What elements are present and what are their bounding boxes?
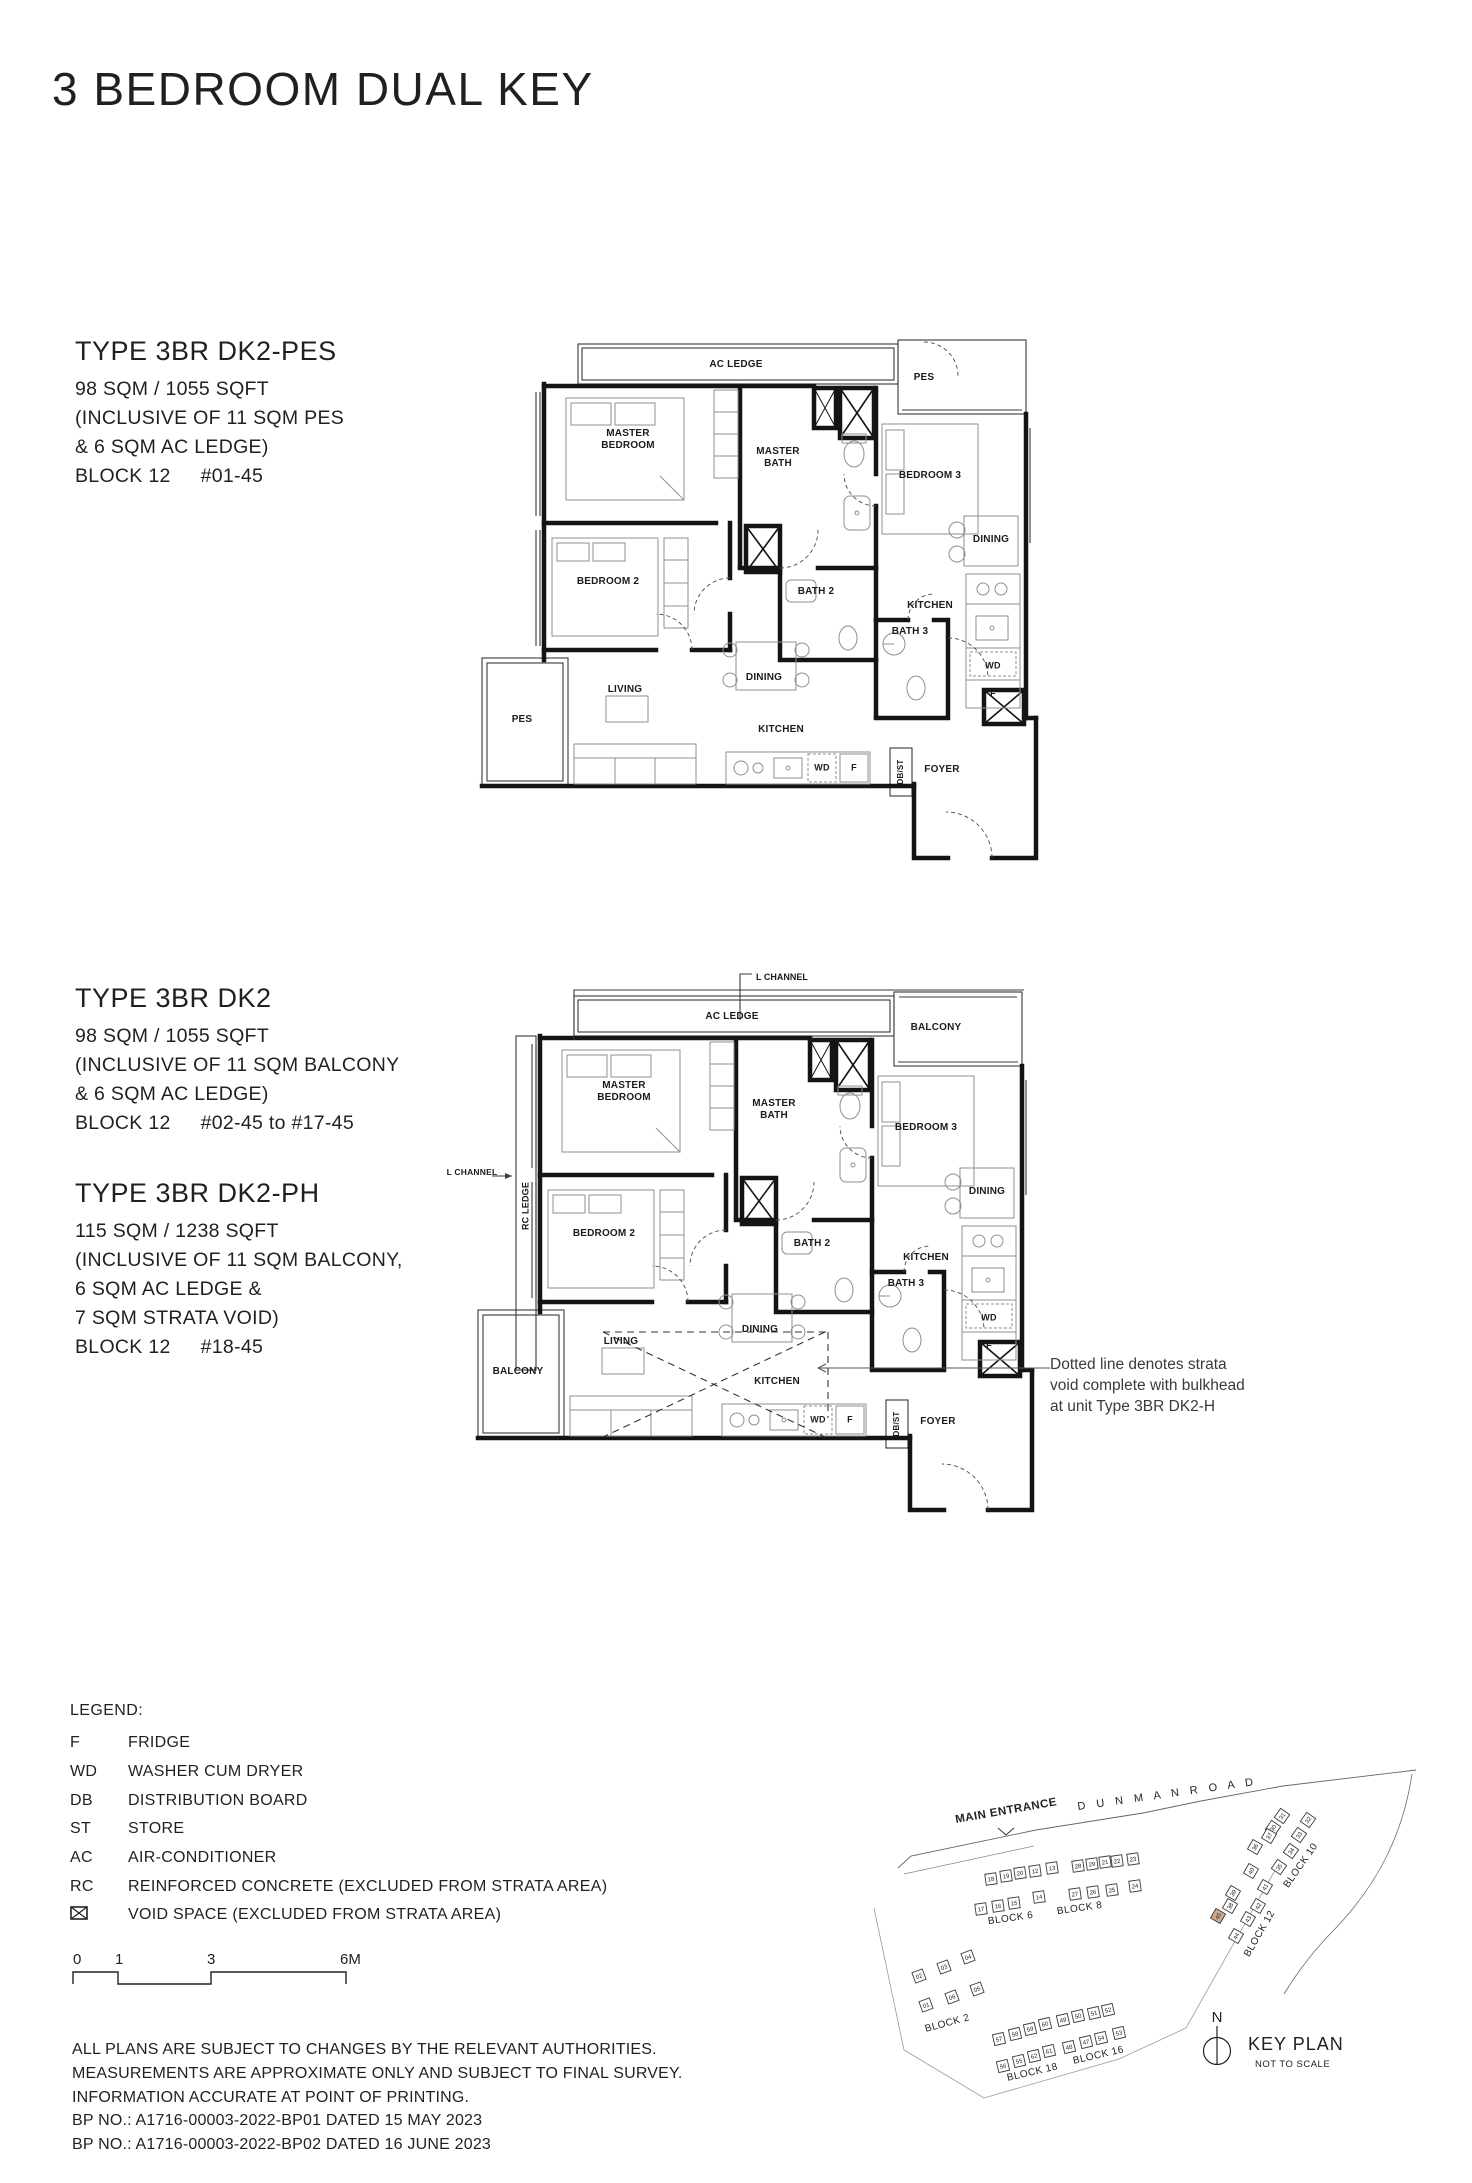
- room-label-ac-ledge: AC LEDGE: [705, 1011, 758, 1023]
- pes-gate-door-arc: [924, 342, 958, 376]
- room-label-wd-suite: WD: [981, 1313, 996, 1324]
- unit-block-levels: BLOCK 12#18-45: [75, 1333, 403, 1362]
- keyplan-unit: 26: [1087, 1886, 1099, 1898]
- keyplan-unit: 59: [1023, 2022, 1036, 2035]
- keyplan-title: KEY PLAN: [1248, 2034, 1344, 2054]
- legend-row: RCREINFORCED CONCRETE (EXCLUDED FROM STR…: [70, 1872, 607, 1901]
- keyplan-unit: 19: [1000, 1870, 1012, 1882]
- keyplan-unit: 62: [1027, 2049, 1040, 2062]
- keyplan-unit: 57: [992, 2032, 1005, 2045]
- keyplan-subtitle: NOT TO SCALE: [1255, 2059, 1330, 2070]
- room-label-kitchen: KITCHEN: [754, 1376, 800, 1388]
- keyplan-unit: 52: [1101, 2003, 1114, 2016]
- keyplan-unit: 53: [1112, 2026, 1125, 2039]
- unit-area: 115 SQM / 1238 SQFT: [75, 1217, 403, 1246]
- legend-desc: FRIDGE: [128, 1734, 190, 1752]
- unit-inclusive-2: & 6 SQM AC LEDGE): [75, 433, 344, 462]
- main-entrance-arrow: [998, 1828, 1014, 1835]
- keyplan-unit: 18: [985, 1873, 997, 1885]
- room-label-dining-suite: DINING: [973, 534, 1009, 546]
- unit-inclusive-1: (INCLUSIVE OF 11 SQM BALCONY,: [75, 1246, 403, 1275]
- disclaimer-line: MEASUREMENTS ARE APPROXIMATE ONLY AND SU…: [72, 2062, 683, 2086]
- room-label-balcony-top: BALCONY: [911, 1022, 962, 1034]
- room-label-wd-suite: WD: [985, 661, 1000, 672]
- callout-l-channel-left: L CHANNEL: [447, 1167, 498, 1177]
- keyplan-unit: 15: [1008, 1897, 1020, 1909]
- keyplan-block-label: BLOCK 2: [924, 2012, 971, 2034]
- keyplan-unit: 01: [919, 1998, 933, 2012]
- room-label-bedroom2: BEDROOM 2: [577, 576, 639, 588]
- keyplan-unit: 12: [1029, 1865, 1041, 1877]
- unit-type-title: TYPE 3BR DK2-PES: [75, 336, 344, 367]
- legend-row: VOID SPACE (EXCLUDED FROM STRATA AREA): [70, 1901, 607, 1930]
- disclaimer-line: BP NO.: A1716-00003-2022-BP02 DATED 16 J…: [72, 2133, 683, 2157]
- keyplan-unit: 24: [1129, 1880, 1141, 1892]
- unit-inclusive-3: 7 SQM STRATA VOID): [75, 1304, 403, 1333]
- keyplan-unit: 20: [1014, 1867, 1026, 1879]
- keyplan-unit: 17: [975, 1903, 987, 1915]
- legend-row: STSTORE: [70, 1815, 607, 1844]
- keyplan-unit: 32: [1300, 1812, 1315, 1827]
- legend-desc: REINFORCED CONCRETE (EXCLUDED FROM STRAT…: [128, 1878, 607, 1896]
- keyplan-unit: 31: [1274, 1808, 1289, 1823]
- room-label-rc-ledge: RC LEDGE: [521, 1182, 532, 1230]
- page-title: 3 BEDROOM DUAL KEY: [52, 62, 594, 116]
- legend-desc: WASHER CUM DRYER: [128, 1763, 303, 1781]
- north-label: N: [1212, 2009, 1223, 2026]
- unit-type-title: TYPE 3BR DK2-PH: [75, 1178, 403, 1209]
- floor-plan-2-drawing: [458, 966, 1068, 1526]
- room-label-pes-bottom: PES: [512, 714, 533, 726]
- room-label-dbst: DB/ST: [892, 1412, 902, 1437]
- legend-abbr: WD: [70, 1763, 128, 1781]
- unit-block: BLOCK 12: [75, 465, 171, 487]
- room-label-kitchen-suite: KITCHEN: [903, 1252, 949, 1264]
- room-label-master-bedroom: MASTER BEDROOM: [591, 1080, 657, 1104]
- room-label-bedroom3: BEDROOM 3: [899, 470, 961, 482]
- legend-abbr: F: [70, 1734, 128, 1752]
- floor-plan-dk2-pes: AC LEDGE PES MASTER BEDROOM MASTER BATH …: [478, 328, 1040, 876]
- keyplan-unit: 49: [1056, 2013, 1069, 2026]
- room-label-f-suite: F: [990, 689, 996, 700]
- room-label-master-bath: MASTER BATH: [741, 1098, 807, 1122]
- room-label-bath2: BATH 2: [794, 1238, 831, 1250]
- keyplan-unit: 33: [1291, 1827, 1306, 1842]
- floor-plan-1-drawing: [478, 328, 1040, 876]
- road-curve: [1284, 1774, 1412, 1994]
- annotation-line-1: Dotted line denotes strata: [1050, 1354, 1290, 1375]
- spec-block-dk2-ph: TYPE 3BR DK2-PH 115 SQM / 1238 SQFT (INC…: [75, 1178, 403, 1362]
- scale-tick-1: 1: [115, 1951, 123, 1968]
- l-channel-arrowhead: [505, 1173, 512, 1179]
- room-label-bedroom2: BEDROOM 2: [573, 1228, 635, 1240]
- keyplan-unit: 03: [937, 1960, 951, 1974]
- unit-inclusive-2: 6 SQM AC LEDGE &: [75, 1275, 403, 1304]
- annotation-line-2: void complete with bulkhead: [1050, 1375, 1290, 1396]
- keyplan-unit: 05: [970, 1982, 984, 1996]
- room-label-dining: DINING: [742, 1324, 778, 1336]
- spec-block-dk2-pes: TYPE 3BR DK2-PES 98 SQM / 1055 SQFT (INC…: [75, 336, 344, 491]
- keyplan-unit: 21: [1099, 1856, 1111, 1868]
- room-label-foyer: FOYER: [920, 1416, 955, 1428]
- keyplan-unit: 34: [1283, 1843, 1298, 1858]
- room-label-f: F: [847, 1415, 853, 1426]
- disclaimer-line: BP NO.: A1716-00003-2022-BP01 DATED 15 M…: [72, 2109, 683, 2133]
- room-label-bath3: BATH 3: [892, 626, 929, 638]
- keyplan-unit: 27: [1069, 1888, 1081, 1900]
- legend-row: WDWASHER CUM DRYER: [70, 1758, 607, 1787]
- room-label-wd: WD: [810, 1415, 825, 1426]
- unit-area: 98 SQM / 1055 SQFT: [75, 1022, 399, 1051]
- floor-plan-dk2: L CHANNEL L CHANNEL RC LEDGE AC LEDGE BA…: [458, 966, 1068, 1526]
- legend-row: DBDISTRIBUTION BOARD: [70, 1786, 607, 1815]
- scale-bar: 0 1 3 6M: [68, 1950, 448, 2000]
- keyplan-unit: 61: [1042, 2044, 1055, 2057]
- keyplan-unit: 41: [1257, 1879, 1272, 1894]
- unit-block-levels: BLOCK 12#02-45 to #17-45: [75, 1109, 399, 1138]
- keyplan-unit: 25: [1106, 1884, 1118, 1896]
- unit-levels: #18-45: [201, 1336, 264, 1358]
- keyplan-unit: 04: [961, 1950, 975, 1964]
- room-label-bath3: BATH 3: [888, 1278, 925, 1290]
- keyplan-unit: 42: [1250, 1898, 1265, 1913]
- unit-inclusive-2: & 6 SQM AC LEDGE): [75, 1080, 399, 1109]
- keyplan-unit: 16: [992, 1900, 1004, 1912]
- room-label-dining-suite: DINING: [969, 1186, 1005, 1198]
- keyplan-unit: 36: [1247, 1839, 1262, 1854]
- room-label-master-bedroom: MASTER BEDROOM: [595, 428, 661, 452]
- keyplan-unit: 06: [945, 1990, 959, 2004]
- room-label-balcony-bottom: BALCONY: [493, 1366, 544, 1378]
- room-label-foyer: FOYER: [924, 764, 959, 776]
- keyplan-unit: 54: [1094, 2031, 1107, 2044]
- void-space-icon: [70, 1906, 88, 1920]
- disclaimer-line: ALL PLANS ARE SUBJECT TO CHANGES BY THE …: [72, 2038, 683, 2062]
- keyplan-unit: 51: [1087, 2006, 1100, 2019]
- room-label-f-suite: F: [986, 1341, 992, 1352]
- room-label-bedroom3: BEDROOM 3: [895, 1122, 957, 1134]
- floorplan-brochure-page: 3 BEDROOM DUAL KEY TYPE 3BR DK2-PES 98 S…: [0, 0, 1472, 2183]
- keyplan-unit: 02: [912, 1969, 926, 1983]
- legend-desc: VOID SPACE (EXCLUDED FROM STRATA AREA): [128, 1906, 501, 1924]
- keyplan-unit: 58: [1008, 2027, 1021, 2040]
- scale-tick-3: 3: [207, 1951, 215, 1968]
- room-label-living: LIVING: [608, 684, 643, 696]
- room-label-dining: DINING: [746, 672, 782, 684]
- road-name-label: D U N M A N R O A D: [1077, 1776, 1258, 1813]
- key-plan: MAIN ENTRANCE D U N M A N R O A D 020304…: [856, 1768, 1472, 2174]
- keyplan-unit: 55: [1012, 2054, 1025, 2067]
- unit-levels: #02-45 to #17-45: [201, 1112, 354, 1134]
- keyplan-unit: 28: [1072, 1860, 1084, 1872]
- room-label-bath2: BATH 2: [798, 586, 835, 598]
- keyplan-unit: 40: [1243, 1863, 1258, 1878]
- room-label-master-bath: MASTER BATH: [745, 446, 811, 470]
- scale-bar-line: [73, 1972, 346, 1984]
- scale-tick-0: 0: [73, 1951, 81, 1968]
- disclaimer: ALL PLANS ARE SUBJECT TO CHANGES BY THE …: [72, 2038, 683, 2157]
- keyplan-unit: 23: [1127, 1853, 1139, 1865]
- room-label-pes-top: PES: [914, 372, 935, 384]
- legend-desc: DISTRIBUTION BOARD: [128, 1792, 308, 1810]
- keyplan-unit: 14: [1033, 1891, 1045, 1903]
- keyplan-unit: 29: [1086, 1858, 1098, 1870]
- keyplan-unit: 43: [1240, 1911, 1255, 1926]
- keyplan-unit: 48: [1062, 2040, 1075, 2053]
- unit-block: BLOCK 12: [75, 1336, 171, 1358]
- legend-row: FFRIDGE: [70, 1729, 607, 1758]
- keyplan-unit: 47: [1079, 2035, 1092, 2048]
- annotation-line-3: at unit Type 3BR DK2-H: [1050, 1396, 1290, 1417]
- legend-abbr: ST: [70, 1820, 128, 1838]
- spec-block-dk2: TYPE 3BR DK2 98 SQM / 1055 SQFT (INCLUSI…: [75, 983, 399, 1138]
- unit-inclusive-1: (INCLUSIVE OF 11 SQM BALCONY: [75, 1051, 399, 1080]
- room-label-living: LIVING: [604, 1336, 639, 1348]
- scale-tick-6m: 6M: [340, 1951, 361, 1968]
- keyplan-block-label: BLOCK 16: [1072, 2044, 1125, 2066]
- keyplan-unit: 56: [996, 2059, 1009, 2072]
- legend-abbr: RC: [70, 1878, 128, 1896]
- unit-block: BLOCK 12: [75, 1112, 171, 1134]
- keyplan-block-label: BLOCK 8: [1056, 1900, 1103, 1917]
- legend-row: ACAIR-CONDITIONER: [70, 1844, 607, 1873]
- keyplan-unit: 50: [1071, 2009, 1084, 2022]
- keyplan-unit: 13: [1046, 1862, 1058, 1874]
- legend-abbr: AC: [70, 1849, 128, 1867]
- room-label-wd: WD: [814, 763, 829, 774]
- unit-inclusive-1: (INCLUSIVE OF 11 SQM PES: [75, 404, 344, 433]
- legend-title: LEGEND:: [70, 1702, 607, 1720]
- room-label-dbst: DB/ST: [896, 760, 906, 785]
- keyplan-unit: 60: [1038, 2017, 1051, 2030]
- room-label-ac-ledge: AC LEDGE: [709, 359, 762, 371]
- legend-desc: AIR-CONDITIONER: [128, 1849, 277, 1867]
- strata-void-annotation: Dotted line denotes strata void complete…: [1050, 1354, 1290, 1417]
- room-label-kitchen-suite: KITCHEN: [907, 600, 953, 612]
- disclaimer-line: INFORMATION ACCURATE AT POINT OF PRINTIN…: [72, 2086, 683, 2110]
- callout-l-channel-top: L CHANNEL: [756, 972, 808, 982]
- keyplan-unit: 22: [1111, 1855, 1123, 1867]
- room-label-kitchen: KITCHEN: [758, 724, 804, 736]
- unit-type-title: TYPE 3BR DK2: [75, 983, 399, 1014]
- legend-desc: STORE: [128, 1820, 184, 1838]
- unit-block-levels: BLOCK 12#01-45: [75, 462, 344, 491]
- room-label-f: F: [851, 763, 857, 774]
- legend-abbr: DB: [70, 1792, 128, 1810]
- main-entrance-label: MAIN ENTRANCE: [954, 1796, 1058, 1826]
- legend: LEGEND: FFRIDGE WDWASHER CUM DRYER DBDIS…: [70, 1702, 607, 1930]
- unit-levels: #01-45: [201, 465, 264, 487]
- keyplan-unit: 45: [1210, 1908, 1225, 1923]
- unit-area: 98 SQM / 1055 SQFT: [75, 375, 344, 404]
